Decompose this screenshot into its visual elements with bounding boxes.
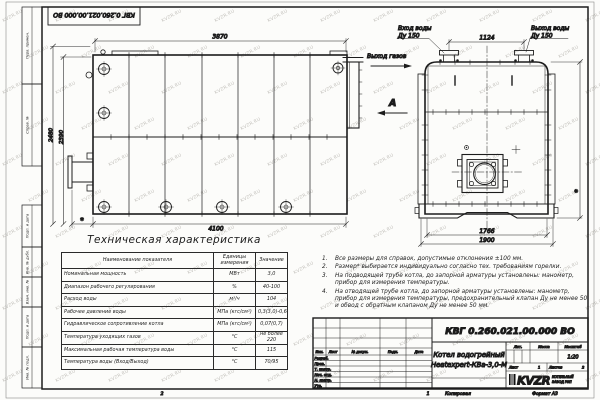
table-cell: Температура воды (Вход/Выход): [62, 357, 214, 370]
tb-scale-label: Масштаб: [564, 345, 582, 349]
tb-row-nkontr: Н. контр.: [315, 379, 332, 383]
table-row: Номинальная мощностьМВт3,0: [62, 269, 288, 282]
product-name-line1: Котел водогрейный: [433, 351, 505, 359]
gas-duct: [343, 58, 363, 129]
note-text: Размер* выбирается индивидуально согласн…: [335, 264, 588, 271]
logo-sub1: КОТЕЛЬНЫЙ: [552, 374, 574, 379]
tb-col-podp: Подп.: [388, 350, 398, 354]
table-cell: °С: [214, 331, 256, 344]
tb-col-docum: № докум.: [351, 350, 369, 354]
label-gas-outlet: Выход газов: [367, 53, 407, 60]
logo-sub2: ЗАВОД РЭП: [552, 380, 572, 384]
side-fitting: [86, 72, 92, 78]
note-text: Все размеры для справок, допустимые откл…: [335, 256, 588, 263]
table-cell: МВт: [214, 269, 256, 282]
margin-box-label: Подп. и дата: [25, 315, 29, 339]
side-view: [68, 50, 363, 217]
margin-box-label: Инв. № дубл.: [25, 250, 29, 275]
tb-col-list: Лист: [328, 350, 339, 354]
footer: 2 1 Копировал Формат А3: [161, 391, 558, 397]
tb-row-nachotd: Нач. отд.: [315, 373, 332, 377]
table-cell: 104: [256, 294, 288, 307]
dim-side-top: 3870: [212, 34, 227, 41]
tb-row-razrab: Разраб.: [315, 357, 329, 361]
drawing-sheet: KVZR.RUKVZR.RUKVZR.RUKVZR.RUKVZR.RUKVZR.…: [0, 0, 600, 400]
table-header-name: Наименование показателя: [62, 253, 214, 269]
tb-sheet-value: 1: [538, 366, 540, 370]
table-row: Температура воды (Вход/Выход)°С70/95: [62, 357, 288, 370]
margin-box-label: Взам. инв. №: [25, 280, 29, 305]
dim-front-star: *: [574, 189, 582, 193]
note-item: 4.На отводящей трубе котла, до запорной …: [322, 289, 588, 311]
table-cell: Температура уходящих газов: [62, 331, 214, 344]
tb-row-utv: Утв.: [315, 384, 323, 388]
tb-sheet-label: Лист: [508, 366, 519, 370]
table-cell: %: [214, 281, 256, 294]
label-water-inlet: Вход воды: [398, 25, 432, 32]
note-text: На отводящей трубе котла, до запорной ар…: [335, 289, 588, 311]
table-cell: Расход воды: [62, 294, 214, 307]
tb-sheets-label: Листов: [548, 366, 562, 370]
water-outlet-nozzle: [514, 51, 534, 63]
table-cell: МПа (кгс/см²): [214, 306, 256, 319]
dim-front-inner-width: 1766: [479, 228, 494, 235]
table-cell: Номинальная мощность: [62, 269, 214, 282]
footer-zone-left: 2: [161, 391, 164, 397]
table-row: Температура уходящих газов°Сне более 220: [62, 331, 288, 344]
margin-box-label: Справ. №: [25, 116, 29, 134]
tb-sheets-value: 2: [582, 366, 585, 370]
table-row: Максимальная рабочая температура воды°С1…: [62, 344, 288, 357]
tb-lit-label: Лит.: [513, 345, 522, 349]
labels: [371, 39, 568, 116]
table-cell: МПа (кгс/см²): [214, 319, 256, 332]
table-cell: Гидравлическое сопротивление котла: [62, 319, 214, 332]
footer-format: Формат А3: [532, 391, 558, 397]
table-row: Рабочее давление водыМПа (кгс/см²)0,3(3,…: [62, 306, 288, 319]
tech-table-title: Техническая характеристика: [61, 234, 287, 246]
burner-flange: [458, 146, 521, 193]
note-number: 4.: [322, 289, 335, 311]
footer-zone-num: 1: [427, 391, 430, 397]
table-header-units: Единицы измерения: [214, 253, 256, 269]
dim-side-bottom: 4100: [208, 226, 223, 233]
note-item: 3.На подводящей трубе котла, до запорной…: [322, 273, 588, 288]
table-cell: Рабочее давление воды: [62, 306, 214, 319]
footer-copied: Копировал: [445, 391, 471, 397]
tb-scale-value: 1:20: [567, 355, 578, 361]
table-cell: 70/95: [256, 357, 288, 370]
boiler-base: [415, 204, 558, 218]
note-number: 1.: [322, 256, 335, 263]
dimensions-side: [51, 39, 349, 228]
table-cell: 3,0: [256, 269, 288, 282]
margin-column: Перв. примен.Справ. №Подп. и датаИнв. № …: [22, 7, 42, 388]
table-cell: Диапазон рабочего регулирования: [62, 281, 214, 294]
dim-front-nozzle-span: 1124: [479, 35, 494, 42]
label-view-arrow: А: [388, 98, 396, 109]
table-cell: м³/ч: [214, 294, 256, 307]
margin-box-label: Инв. № подл.: [25, 355, 29, 380]
note-number: 2.: [322, 264, 335, 271]
title-block-docnum: КВГ 0.260.021.00.000 ВО: [445, 327, 575, 337]
margin-box-label: Перв. примен.: [25, 32, 29, 59]
format-stamp-docnum: КВГ 0.260.021.00.000 ВО: [53, 11, 135, 18]
tb-row-tkontr: Т. контр.: [315, 368, 332, 372]
dim-side-star: *: [80, 217, 84, 225]
note-number: 3.: [322, 273, 335, 288]
note-item: 1.Все размеры для справок, допустимые от…: [322, 256, 588, 263]
dim-front-outer-width: 1900: [479, 237, 494, 244]
table-cell: °С: [214, 344, 256, 357]
table-cell: 115: [256, 344, 288, 357]
label-water-inlet-dn: Ду 150: [397, 32, 420, 39]
inspection-hatches: [97, 61, 346, 215]
label-water-outlet: Выход воды: [531, 25, 569, 32]
logo-kvzr: KVZR: [517, 374, 550, 388]
table-cell: 0,07(0,7): [256, 319, 288, 332]
front-view: [415, 46, 558, 228]
table-cell: °С: [214, 357, 256, 370]
table-cell: 40-100: [256, 281, 288, 294]
dim-side-height-inner: 2390: [59, 129, 65, 144]
product-name-line2: Heatexpert-КВа-3,0-М: [431, 361, 507, 369]
tech-table: Наименование показателя Единицы измерени…: [61, 252, 288, 370]
tb-mass-label: Масса: [538, 345, 549, 349]
table-header-value: Значение: [256, 253, 288, 269]
notes-list: 1.Все размеры для справок, допустимые от…: [322, 256, 588, 312]
table-row: Диапазон рабочего регулирования%40-100: [62, 281, 288, 294]
tb-col-izm: Изм.: [316, 350, 324, 354]
dim-side-height-outer: 2480: [49, 127, 55, 142]
table-cell: не более 220: [256, 331, 288, 344]
burner-stub: [68, 153, 93, 191]
table-cell: Максимальная рабочая температура воды: [62, 344, 214, 357]
label-water-outlet-dn: Ду 150: [530, 32, 553, 39]
margin-box-label: Подп. и дата: [25, 214, 29, 238]
table-row: Расход водым³/ч104: [62, 294, 288, 307]
water-inlet-nozzle: [439, 51, 459, 63]
tb-col-data: Дата: [414, 350, 424, 354]
dimensions-front: [419, 40, 583, 247]
note-item: 2.Размер* выбирается индивидуально согла…: [322, 264, 588, 271]
tb-row-prov: Пров.: [315, 362, 325, 366]
table-row: Гидравлическое сопротивление котлаМПа (к…: [62, 319, 288, 332]
note-text: На подводящей трубе котла, до запорной а…: [335, 273, 588, 288]
table-header-row: Наименование показателя Единицы измерени…: [62, 253, 288, 269]
table-cell: 0,3(3,0)-0,6(6,0): [256, 306, 288, 319]
